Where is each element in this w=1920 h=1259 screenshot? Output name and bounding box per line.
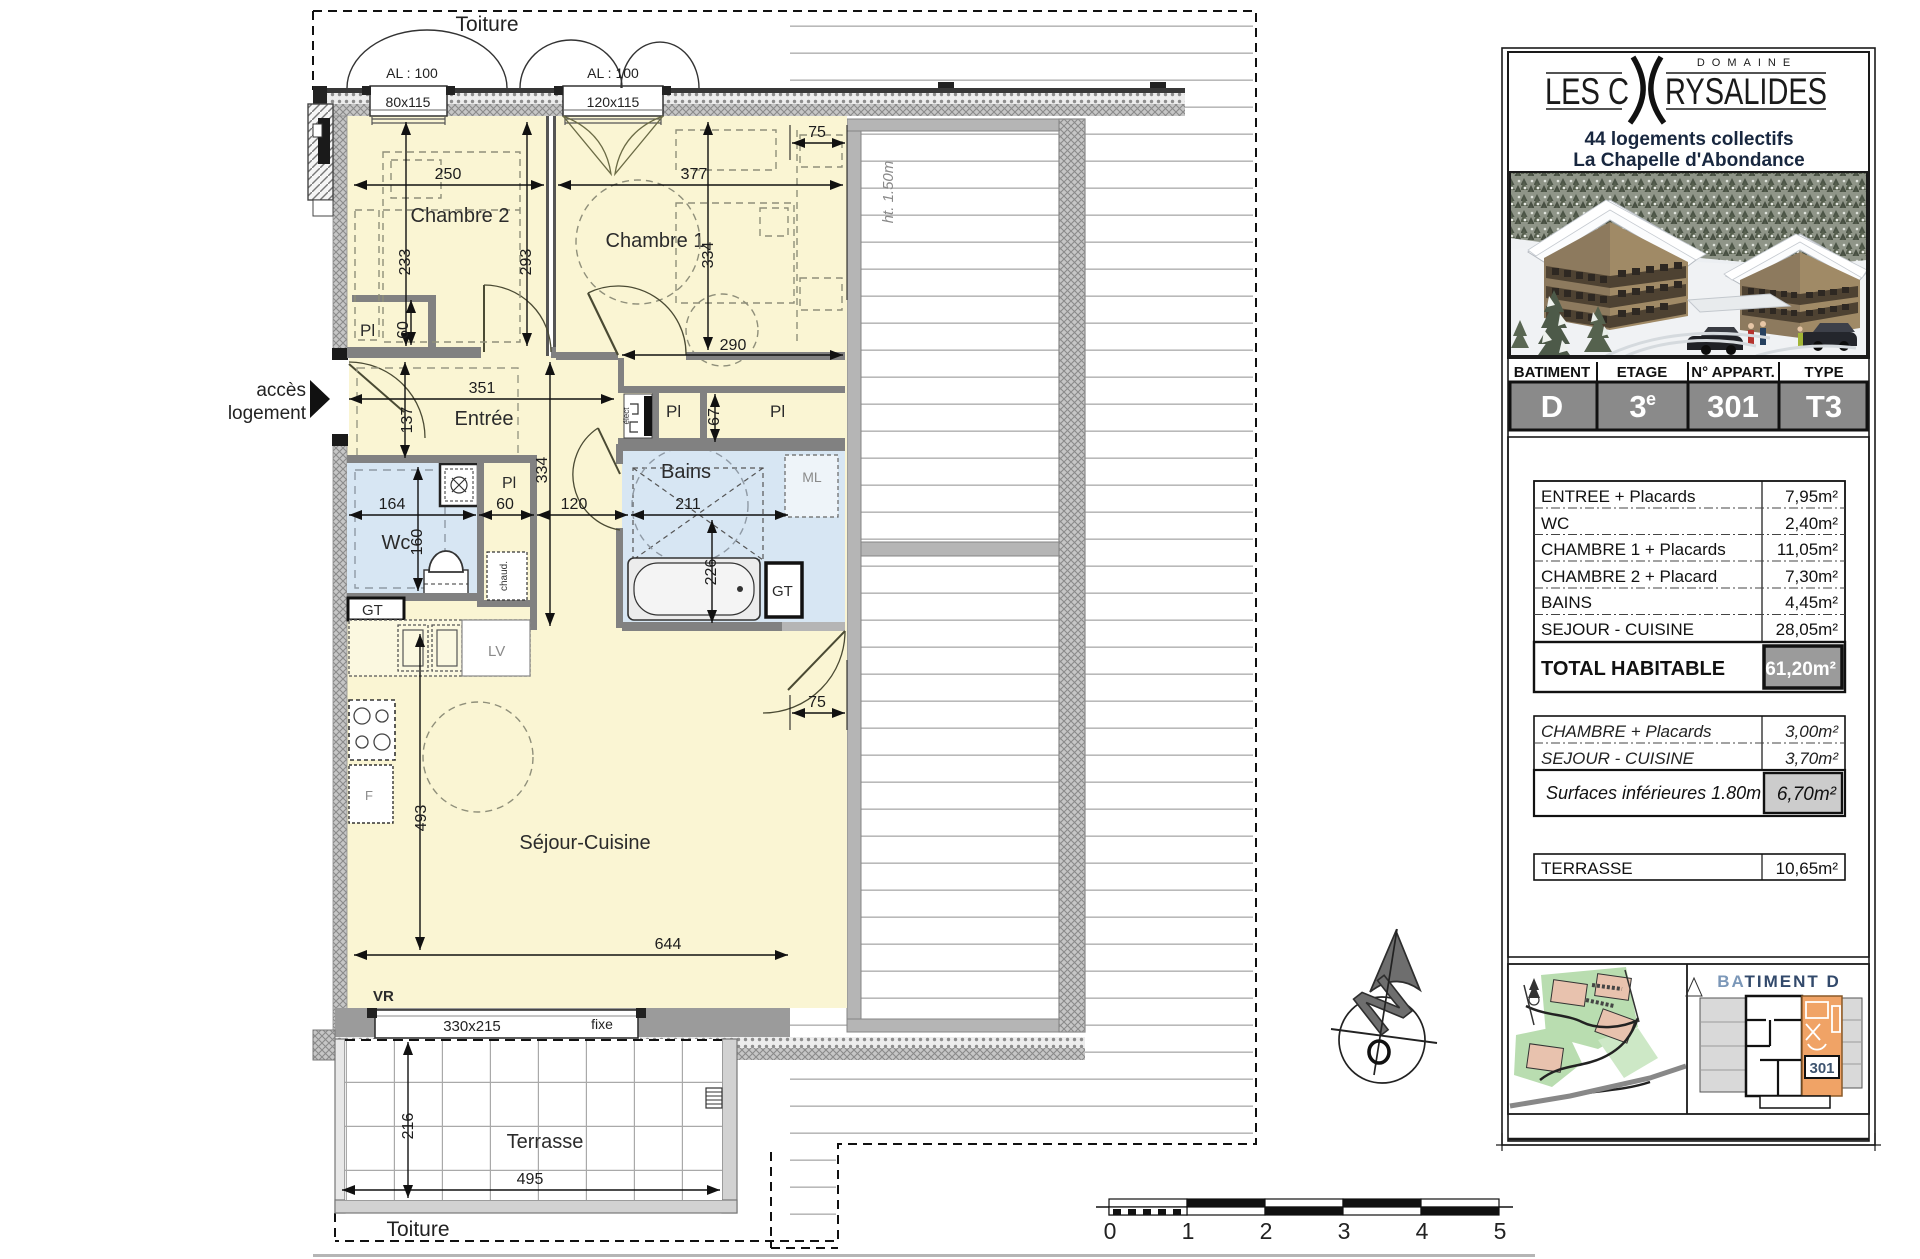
svg-text:Bains: Bains (661, 461, 711, 483)
svg-text:ht. 1.50m: ht. 1.50m (880, 161, 897, 224)
svg-text:TERRASSE: TERRASSE (1541, 859, 1633, 878)
svg-text:226: 226 (703, 559, 720, 586)
svg-text:TYPE: TYPE (1804, 364, 1843, 381)
svg-text:F: F (365, 788, 373, 803)
svg-text:BATIMENT D: BATIMENT D (1717, 972, 1841, 991)
svg-text:351: 351 (469, 380, 496, 397)
svg-text:BAINS: BAINS (1541, 593, 1592, 612)
svg-text:RYSALIDES: RYSALIDES (1665, 71, 1827, 112)
svg-text:Terrasse: Terrasse (507, 1131, 584, 1153)
svg-text:495: 495 (517, 1171, 544, 1188)
svg-text:VR: VR (373, 988, 394, 1005)
svg-text:N° APPART.: N° APPART. (1691, 364, 1775, 381)
svg-text:D: D (1541, 389, 1563, 424)
svg-text:T3: T3 (1806, 389, 1842, 424)
svg-text:logement: logement (228, 403, 307, 424)
svg-text:chaud.: chaud. (499, 561, 510, 591)
svg-text:AL : 100: AL : 100 (587, 65, 639, 81)
svg-text:493: 493 (413, 805, 430, 832)
svg-text:293: 293 (518, 249, 535, 276)
svg-text:11,05m²: 11,05m² (1777, 540, 1838, 559)
svg-text:233: 233 (397, 249, 414, 276)
svg-text:4,45m²: 4,45m² (1785, 593, 1838, 612)
svg-text:28,05m²: 28,05m² (1776, 620, 1839, 639)
svg-text:TOTAL HABITABLE: TOTAL HABITABLE (1541, 658, 1725, 680)
svg-text:AL : 100: AL : 100 (386, 65, 438, 81)
svg-text:LV: LV (488, 643, 505, 660)
svg-text:334: 334 (534, 457, 551, 484)
svg-text:60: 60 (395, 321, 412, 339)
svg-text:120: 120 (561, 496, 588, 513)
svg-text:CHAMBRE 2 + Placard: CHAMBRE 2 + Placard (1541, 567, 1717, 586)
svg-text:216: 216 (400, 1113, 417, 1140)
svg-text:4: 4 (1416, 1218, 1429, 1244)
svg-text:3: 3 (1338, 1218, 1351, 1244)
svg-text:60: 60 (496, 496, 514, 513)
svg-text:3,70m²: 3,70m² (1785, 749, 1839, 768)
svg-text:fixe: fixe (591, 1016, 613, 1032)
svg-text:250: 250 (435, 166, 462, 183)
svg-text:La Chapelle d'Abondance: La Chapelle d'Abondance (1573, 150, 1805, 171)
svg-text:44 logements collectifs: 44 logements collectifs (1584, 129, 1793, 150)
svg-text:290: 290 (720, 337, 747, 354)
svg-text:0: 0 (1104, 1218, 1117, 1244)
svg-text:Toiture: Toiture (455, 13, 518, 36)
svg-text:élect: élect (622, 407, 631, 425)
svg-text:301: 301 (1707, 389, 1759, 424)
svg-text:10,65m²: 10,65m² (1776, 859, 1839, 878)
svg-text:accès: accès (256, 380, 306, 401)
svg-text:Chambre 1: Chambre 1 (606, 230, 705, 252)
svg-text:ETAGE: ETAGE (1617, 364, 1668, 381)
svg-text:2,40m²: 2,40m² (1785, 514, 1838, 533)
svg-text:160: 160 (409, 529, 426, 556)
svg-text:3: 3 (1629, 389, 1646, 424)
svg-text:WC: WC (1541, 514, 1569, 533)
svg-text:377: 377 (681, 166, 708, 183)
svg-text:ML: ML (802, 469, 822, 485)
svg-text:Pl: Pl (360, 321, 375, 340)
svg-text:ENTREE + Placards: ENTREE + Placards (1541, 487, 1695, 506)
svg-text:334: 334 (700, 242, 717, 269)
svg-text:644: 644 (655, 936, 682, 953)
svg-text:211: 211 (675, 496, 701, 513)
svg-text:CHAMBRE + Placards: CHAMBRE + Placards (1541, 722, 1712, 741)
svg-text:5: 5 (1494, 1218, 1507, 1244)
svg-text:330x215: 330x215 (443, 1018, 501, 1035)
svg-text:75: 75 (808, 124, 826, 141)
svg-text:Chambre 2: Chambre 2 (411, 205, 510, 227)
svg-text:SEJOUR - CUISINE: SEJOUR - CUISINE (1541, 620, 1694, 639)
svg-text:GT: GT (362, 602, 383, 619)
svg-text:e: e (1646, 389, 1656, 409)
svg-text:CHAMBRE 1 + Placards: CHAMBRE 1 + Placards (1541, 540, 1726, 559)
svg-text:Pl: Pl (666, 402, 681, 421)
svg-text:120x115: 120x115 (587, 94, 640, 110)
svg-text:GT: GT (772, 583, 793, 600)
svg-text:DOMAINE: DOMAINE (1697, 57, 1797, 69)
svg-text:75: 75 (808, 694, 826, 711)
svg-text:Pl: Pl (770, 402, 785, 421)
svg-text:1: 1 (1182, 1218, 1195, 1244)
svg-text:301: 301 (1809, 1060, 1834, 1077)
svg-text:3,00m²: 3,00m² (1785, 722, 1839, 741)
svg-text:Entrée: Entrée (455, 408, 514, 430)
svg-text:6,70m²: 6,70m² (1777, 784, 1837, 805)
svg-text:Séjour-Cuisine: Séjour-Cuisine (519, 832, 650, 854)
svg-text:Toiture: Toiture (386, 1218, 449, 1241)
svg-text:67: 67 (706, 408, 723, 426)
svg-text:BATIMENT: BATIMENT (1514, 364, 1590, 381)
svg-text:Surfaces inférieures 1.80m: Surfaces inférieures 1.80m (1546, 783, 1761, 803)
svg-text:164: 164 (379, 496, 406, 513)
svg-text:SEJOUR - CUISINE: SEJOUR - CUISINE (1541, 749, 1695, 768)
svg-text:80x115: 80x115 (386, 94, 431, 110)
svg-text:Wc: Wc (382, 532, 411, 554)
svg-text:137: 137 (399, 407, 416, 434)
svg-text:2: 2 (1260, 1218, 1273, 1244)
svg-text:LES C: LES C (1545, 71, 1629, 112)
svg-text:7,30m²: 7,30m² (1785, 567, 1838, 586)
svg-text:7,95m²: 7,95m² (1785, 487, 1838, 506)
svg-text:Pl: Pl (502, 475, 516, 492)
svg-text:61,20m²: 61,20m² (1765, 659, 1836, 680)
